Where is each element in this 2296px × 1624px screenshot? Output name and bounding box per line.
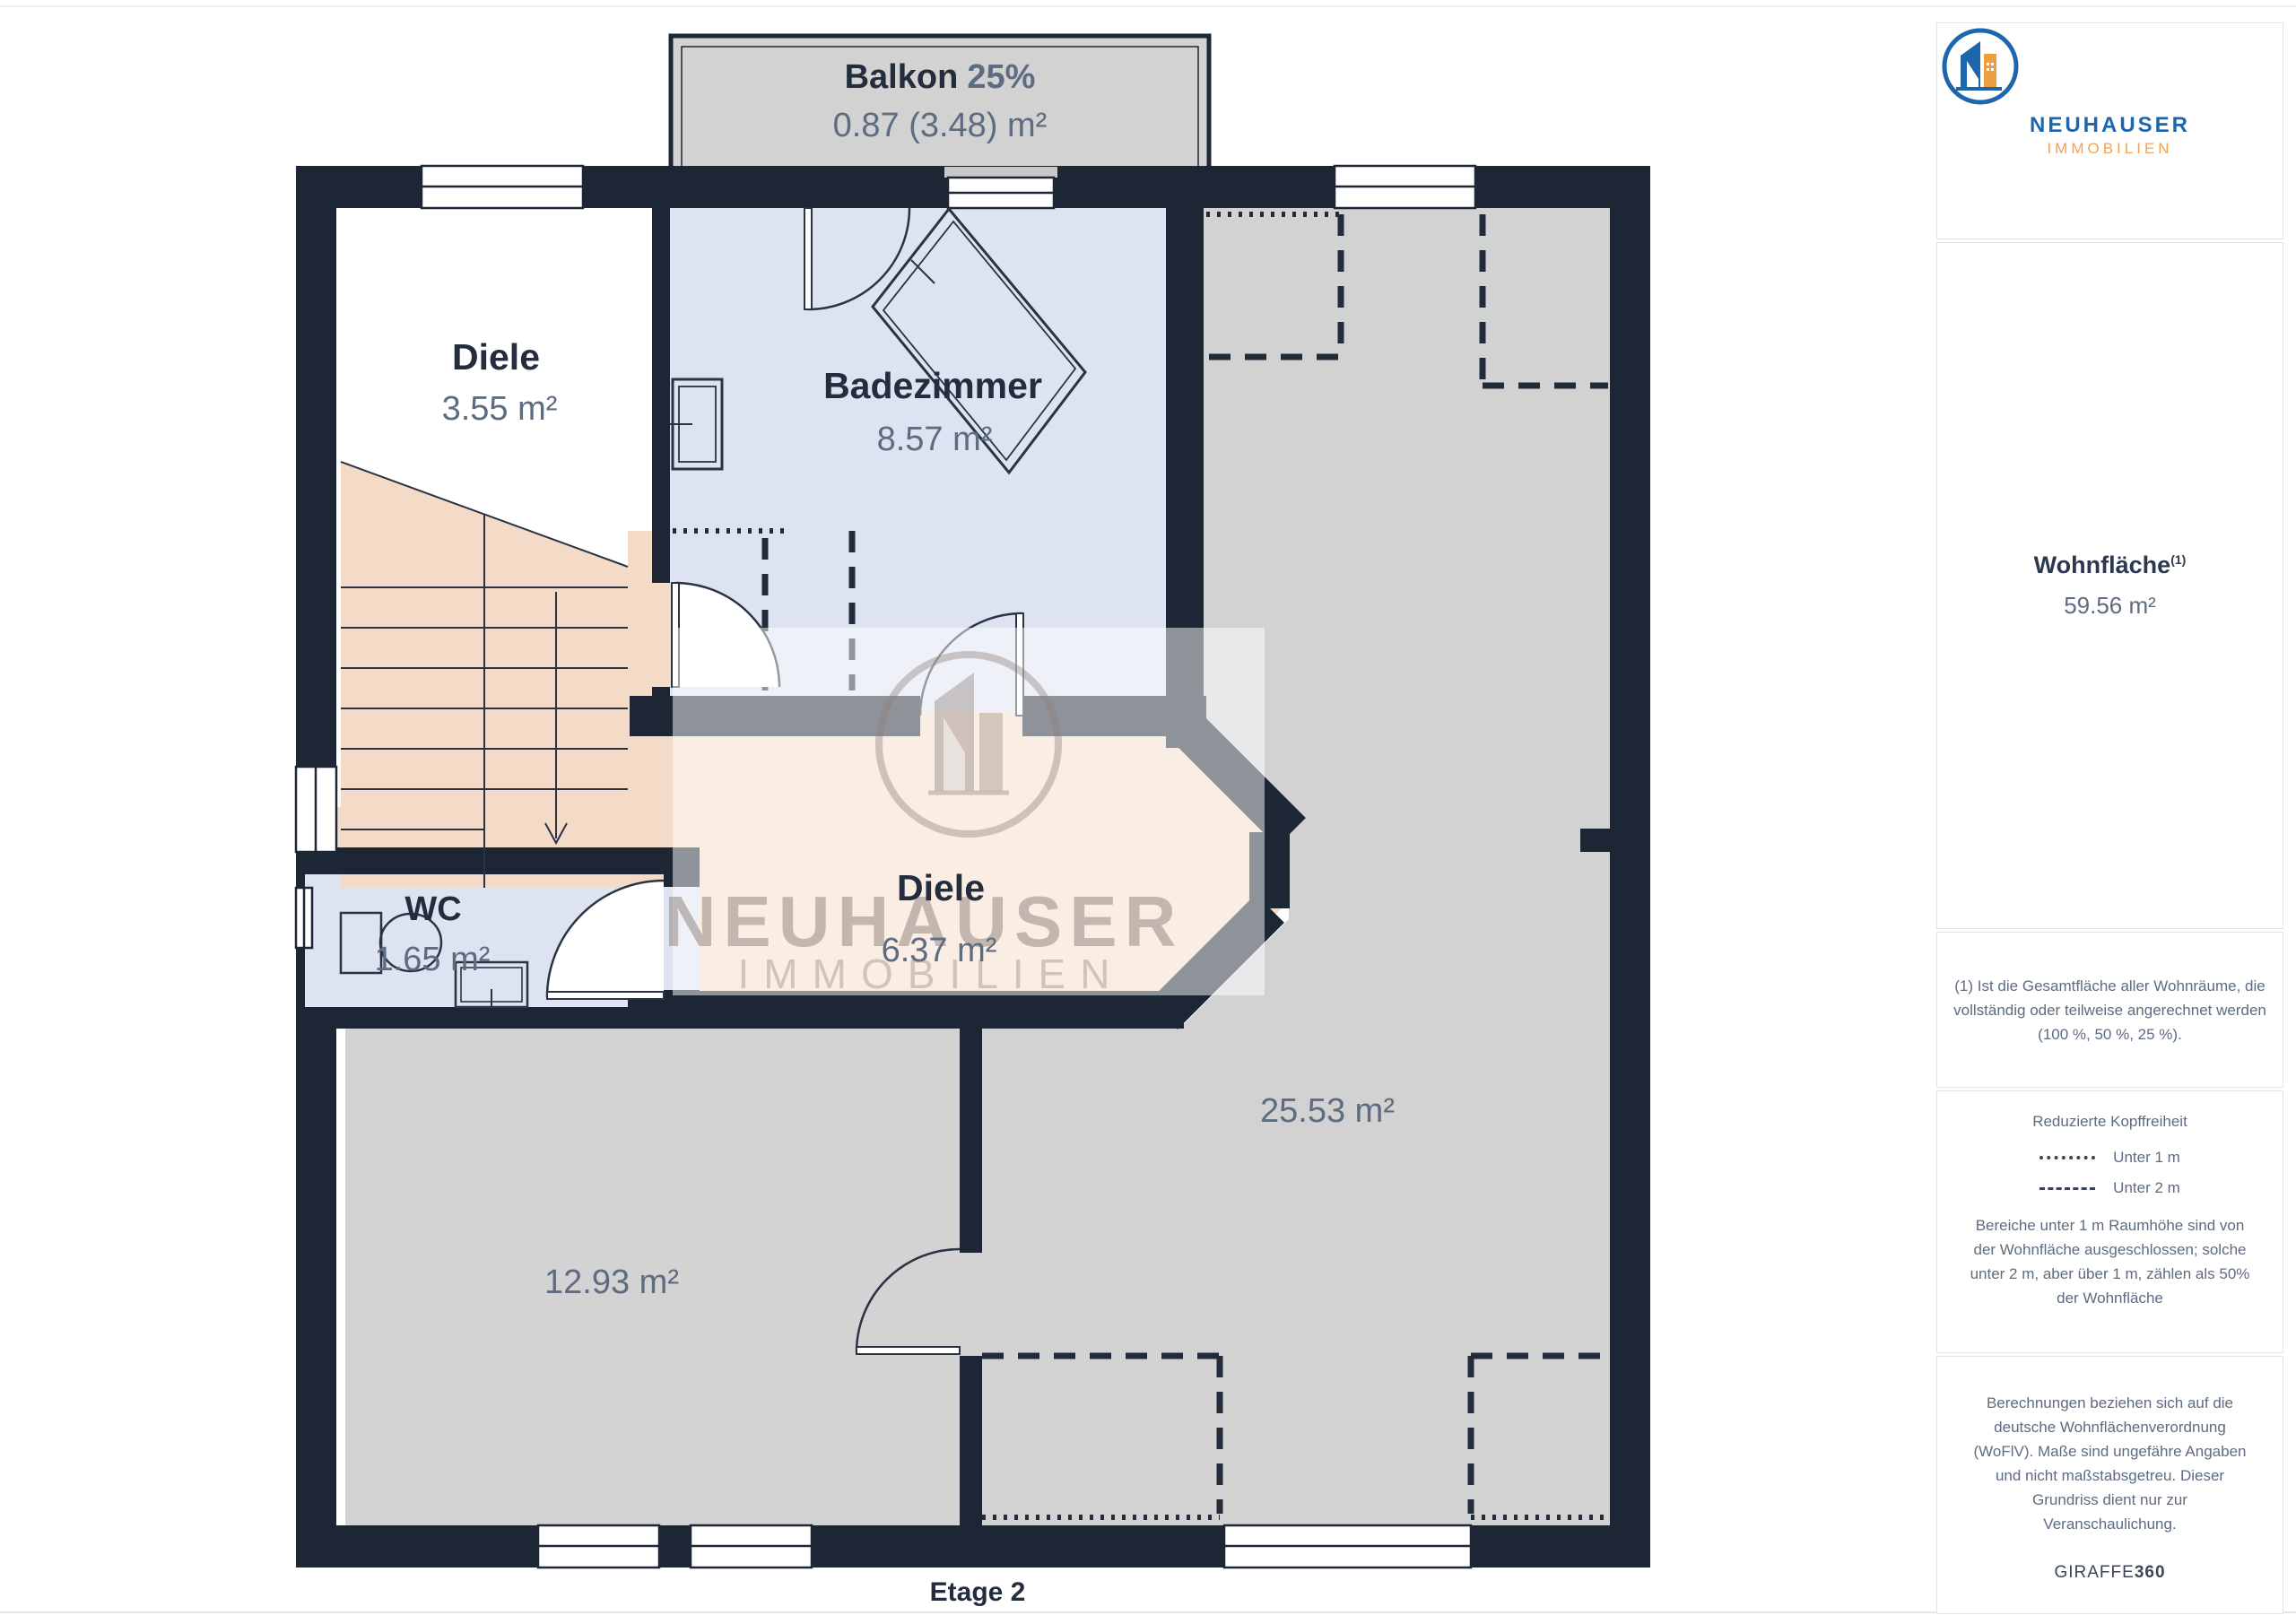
disclaimer-text: Berechnungen beziehen sich auf die deuts…: [1955, 1391, 2265, 1536]
balcony-share: 25%: [967, 58, 1035, 96]
floorplan-page: NEUHAUSER IMMOBILIEN Balkon25% 0.87 (3.4…: [0, 0, 2296, 1624]
living-area-label: Wohnfläche: [2034, 551, 2171, 578]
diele-upper-area: 3.55 m²: [442, 390, 558, 428]
agency-logo-icon: [1937, 23, 2023, 109]
dashed-line-icon: [2039, 1187, 2095, 1190]
legend-under-1m: Unter 1 m: [1953, 1149, 2266, 1167]
legend-under-1m-label: Unter 1 m: [2113, 1149, 2180, 1167]
room-left-area: 12.93 m²: [544, 1264, 679, 1301]
legend-under-2m-label: Unter 2 m: [2113, 1179, 2180, 1197]
living-area-value: 59.56 m²: [2064, 592, 2156, 620]
headroom-note: Bereiche unter 1 m Raumhöhe sind von der…: [1953, 1213, 2266, 1310]
wc-area: 1.65 m²: [375, 941, 491, 978]
room-right-area: 25.53 m²: [1260, 1092, 1395, 1130]
hall-name: Diele: [897, 867, 985, 908]
agency-subtitle: IMMOBILIEN: [2047, 140, 2172, 158]
agency-name: NEUHAUSER: [2030, 113, 2190, 138]
dotted-line-icon: [2039, 1156, 2095, 1159]
area-footnote-card: (1) Ist die Gesamtfläche aller Wohnräume…: [1936, 932, 2283, 1088]
giraffe360-brand: GIRAFFE360: [1955, 1563, 2265, 1583]
living-area-title: Wohnfläche(1): [2034, 551, 2187, 579]
floor-label: Etage 2: [930, 1577, 1026, 1607]
headroom-card: Reduzierte Kopffreiheit Unter 1 m Unter …: [1936, 1090, 2283, 1353]
bathroom-area: 8.57 m²: [877, 421, 993, 458]
legend-under-2m: Unter 2 m: [1953, 1179, 2266, 1197]
bathroom-name: Badezimmer: [823, 365, 1042, 406]
living-area-card: Wohnfläche(1) 59.56 m²: [1936, 242, 2283, 929]
disclaimer-card: Berechnungen beziehen sich auf die deuts…: [1936, 1356, 2283, 1614]
area-footnote-text: (1) Ist die Gesamtfläche aller Wohnräume…: [1937, 974, 2283, 1046]
hall-area: 6.37 m²: [882, 932, 997, 969]
balcony-area: 0.87 (3.48) m²: [833, 107, 1048, 144]
balcony-floor: [671, 36, 1209, 170]
giraffe360-suffix: 360: [2135, 1563, 2166, 1582]
headroom-title: Reduzierte Kopffreiheit: [1953, 1113, 2266, 1131]
diele-upper-name: Diele: [452, 336, 540, 378]
balcony-label: Balkon25%: [845, 58, 1036, 96]
sidebar-logo-card: NEUHAUSER IMMOBILIEN: [1936, 22, 2283, 239]
giraffe360-name: GIRAFFE: [2054, 1563, 2134, 1582]
balcony-name: Balkon: [845, 58, 959, 96]
living-area-footnote-ref: (1): [2170, 552, 2186, 567]
wc-name: WC: [404, 890, 461, 928]
